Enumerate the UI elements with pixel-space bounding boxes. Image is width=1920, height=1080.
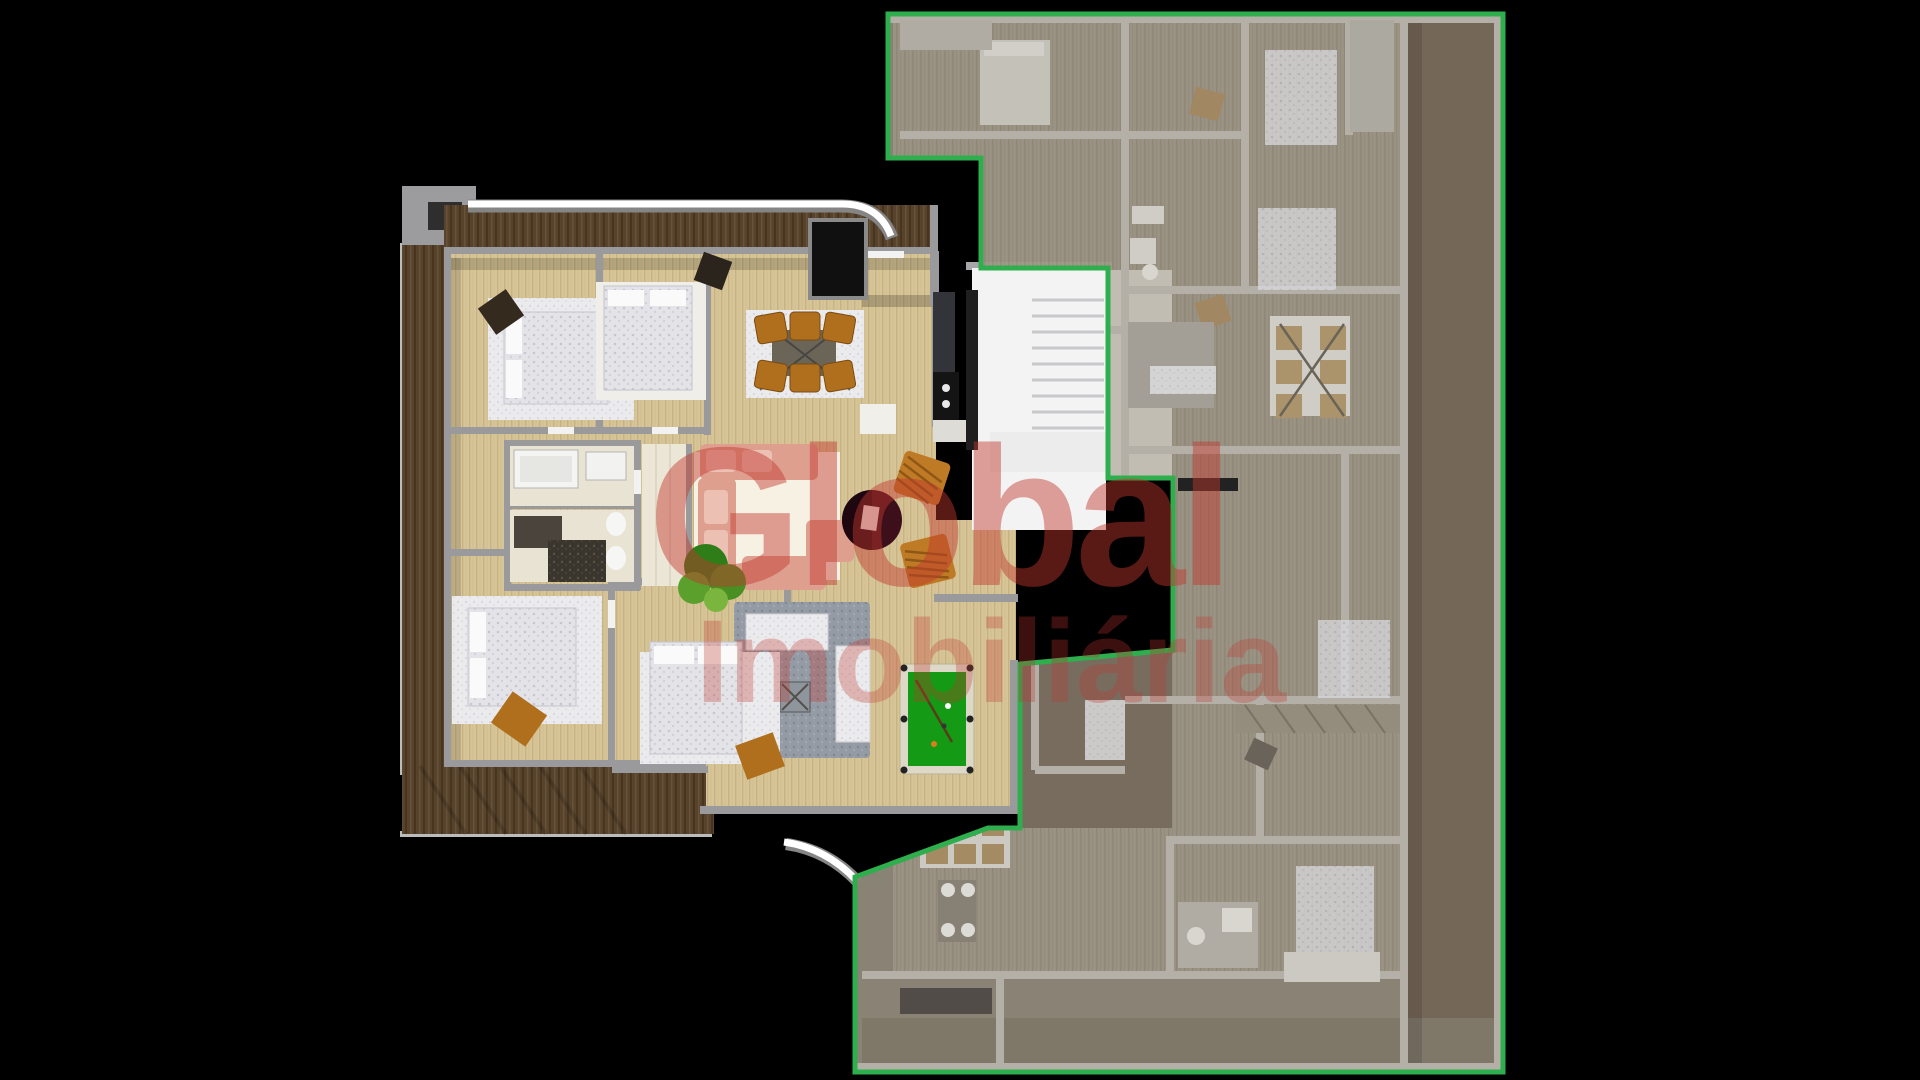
burner	[942, 384, 950, 392]
faded-wardrobe	[1350, 20, 1394, 132]
pillow	[470, 658, 486, 698]
faded-rug	[1284, 952, 1380, 982]
faded-kitchen-counter	[900, 988, 992, 1014]
faded-lounge-rug	[1128, 322, 1214, 408]
bathroom-lower	[510, 510, 634, 582]
faded-bed	[1296, 866, 1374, 960]
faded-sofa	[1150, 366, 1216, 394]
floorplan-canvas: Global Imobiliária	[0, 0, 1920, 1080]
tv-nook	[808, 218, 868, 300]
faded-wardrobe	[900, 20, 992, 50]
faded-dining	[1270, 316, 1350, 418]
shower	[548, 540, 606, 582]
faded-bed	[1265, 50, 1337, 145]
toilet	[606, 512, 626, 536]
faded-bed	[1318, 620, 1390, 698]
bathtub-inner	[520, 456, 572, 482]
sink	[586, 452, 626, 480]
faded-bathroom-2	[1178, 902, 1258, 968]
tv-screen	[812, 222, 864, 296]
wall-shadow	[862, 295, 934, 307]
dining-area	[746, 310, 864, 398]
bidet	[606, 546, 626, 570]
watermark-line2: Imobiliária	[696, 596, 1288, 728]
pillow	[654, 646, 694, 664]
pillow	[506, 360, 522, 398]
billiard-ball	[931, 741, 937, 747]
faded-bed	[1258, 208, 1336, 290]
pillow	[470, 612, 486, 652]
pillow	[608, 290, 644, 306]
bathroom-upper	[510, 446, 634, 506]
faded-pillow	[984, 42, 1044, 56]
terrace-left	[402, 245, 444, 773]
floorplan-svg: Global Imobiliária	[0, 0, 1920, 1080]
pillow	[650, 290, 686, 306]
watermark-line1: Global	[648, 406, 1228, 627]
